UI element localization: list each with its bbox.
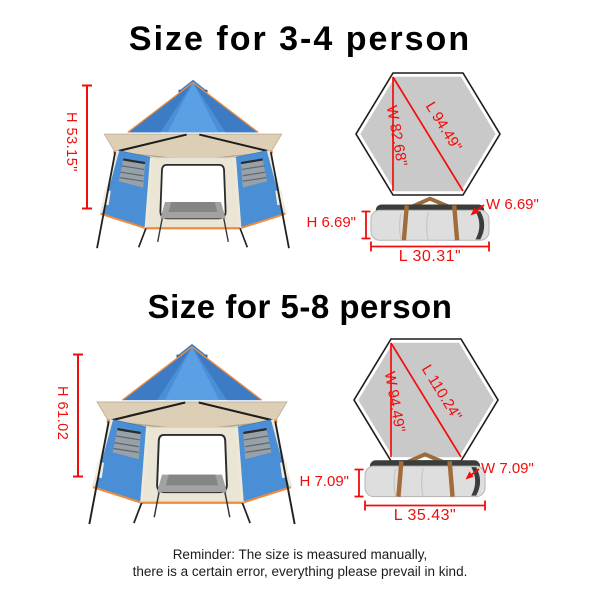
reminder-line-1: Reminder: The size is measured manually,: [0, 546, 600, 563]
bag-length-label-2: L 35.43": [364, 508, 486, 523]
tent-illustration-2: [80, 342, 304, 526]
footprint-hexagon-2: W 94.49" L 110.24": [350, 332, 502, 468]
bag-height-dimension-line-1: [360, 210, 372, 240]
bag-width-arrow-1: [468, 203, 485, 218]
bag-height-label-1: H 6.69": [298, 215, 356, 230]
footprint-hexagon-1: W 82.68" L 94.49": [352, 66, 504, 202]
tent-height-label-2: H 61.02: [54, 386, 70, 440]
section2-title: Size for 5-8 person: [0, 288, 600, 326]
tent-illustration-1: [88, 78, 298, 250]
size-chart-infographic: Size for 3-4 person H 53.15" W 82.68" L …: [0, 0, 600, 600]
tent-height-label-1: H 53.15": [63, 112, 79, 172]
height-dimension-line-1: [80, 84, 94, 210]
bag-width-label-1: W 6.69": [486, 197, 539, 212]
bag-width-label-2: W 7.09": [481, 461, 534, 476]
bag-width-arrow-2: [463, 467, 480, 482]
reminder-line-2: there is a certain error, everything ple…: [0, 563, 600, 580]
height-dimension-line-2: [71, 353, 85, 478]
section1-title: Size for 3-4 person: [0, 20, 600, 59]
bag-height-dimension-line-2: [353, 468, 365, 498]
bag-length-label-1: L 30.31": [370, 249, 490, 264]
bag-height-label-2: H 7.09": [291, 474, 349, 489]
